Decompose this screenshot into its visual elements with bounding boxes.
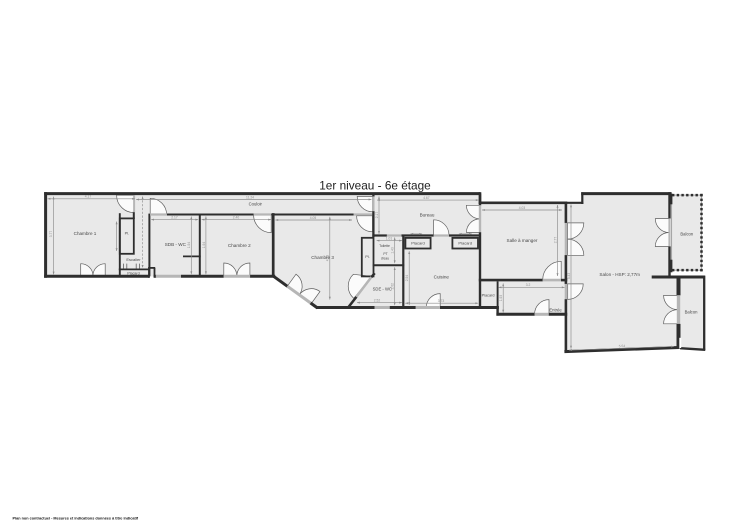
svg-text:Bureau: Bureau	[420, 213, 435, 218]
svg-text:2.17: 2.17	[375, 212, 379, 219]
svg-text:1.94: 1.94	[187, 242, 191, 249]
svg-text:Cuisine: Cuisine	[434, 274, 450, 279]
svg-text:Placard: Placard	[127, 271, 139, 275]
svg-text:Entrée: Entrée	[549, 308, 562, 313]
svg-text:1er niveau - 6e étage: 1er niveau - 6e étage	[319, 179, 431, 193]
svg-text:4.03: 4.03	[519, 206, 526, 210]
svg-text:1.94: 1.94	[202, 242, 206, 249]
svg-text:Escalier: Escalier	[126, 257, 141, 262]
svg-text:5.43: 5.43	[567, 273, 571, 280]
svg-text:Balcon: Balcon	[685, 310, 698, 315]
svg-text:2.94: 2.94	[405, 275, 409, 282]
svg-text:Toilette: Toilette	[379, 244, 390, 248]
svg-text:Chambre 1: Chambre 1	[74, 231, 97, 236]
svg-text:2.77: 2.77	[553, 237, 557, 244]
svg-text:Plan non contractuel - Mesures: Plan non contractuel - Mesures et indica…	[13, 516, 139, 520]
svg-text:2.40: 2.40	[233, 215, 240, 219]
svg-text:Chambre 2: Chambre 2	[228, 243, 251, 248]
svg-text:2.17: 2.17	[171, 215, 178, 219]
svg-text:1.43: 1.43	[391, 247, 395, 254]
svg-text:Balcon: Balcon	[680, 232, 693, 237]
svg-text:1.93: 1.93	[499, 295, 503, 302]
svg-text:3.77: 3.77	[49, 231, 53, 238]
svg-text:4.05: 4.05	[310, 216, 317, 220]
svg-text:2.52: 2.52	[374, 298, 381, 302]
svg-text:4.17: 4.17	[85, 195, 92, 199]
svg-text:3.2: 3.2	[526, 283, 531, 287]
svg-text:Placard: Placard	[411, 241, 425, 246]
svg-text:SDB - WC: SDB - WC	[165, 242, 187, 247]
svg-text:11.24: 11.24	[246, 195, 254, 199]
svg-text:Salle à manger: Salle à manger	[507, 238, 538, 243]
svg-text:5.54: 5.54	[619, 344, 626, 348]
svg-text:Pl.: Pl.	[365, 254, 370, 259]
svg-text:Chambre 3: Chambre 3	[311, 255, 334, 260]
svg-text:Couloir: Couloir	[249, 201, 263, 206]
svg-text:Placard: Placard	[458, 241, 472, 246]
svg-text:3.73: 3.73	[438, 299, 445, 303]
svg-text:SDE - WC: SDE - WC	[373, 286, 392, 291]
svg-text:1.01: 1.01	[386, 236, 393, 240]
svg-text:Pl.: Pl.	[125, 231, 130, 236]
svg-text:Placard: Placard	[482, 293, 495, 297]
svg-text:4.67: 4.67	[423, 196, 430, 200]
svg-text:PT: PT	[383, 252, 387, 256]
svg-text:d'eau: d'eau	[381, 256, 389, 260]
svg-text:Salon - HSP: 2,77m: Salon - HSP: 2,77m	[599, 272, 640, 277]
